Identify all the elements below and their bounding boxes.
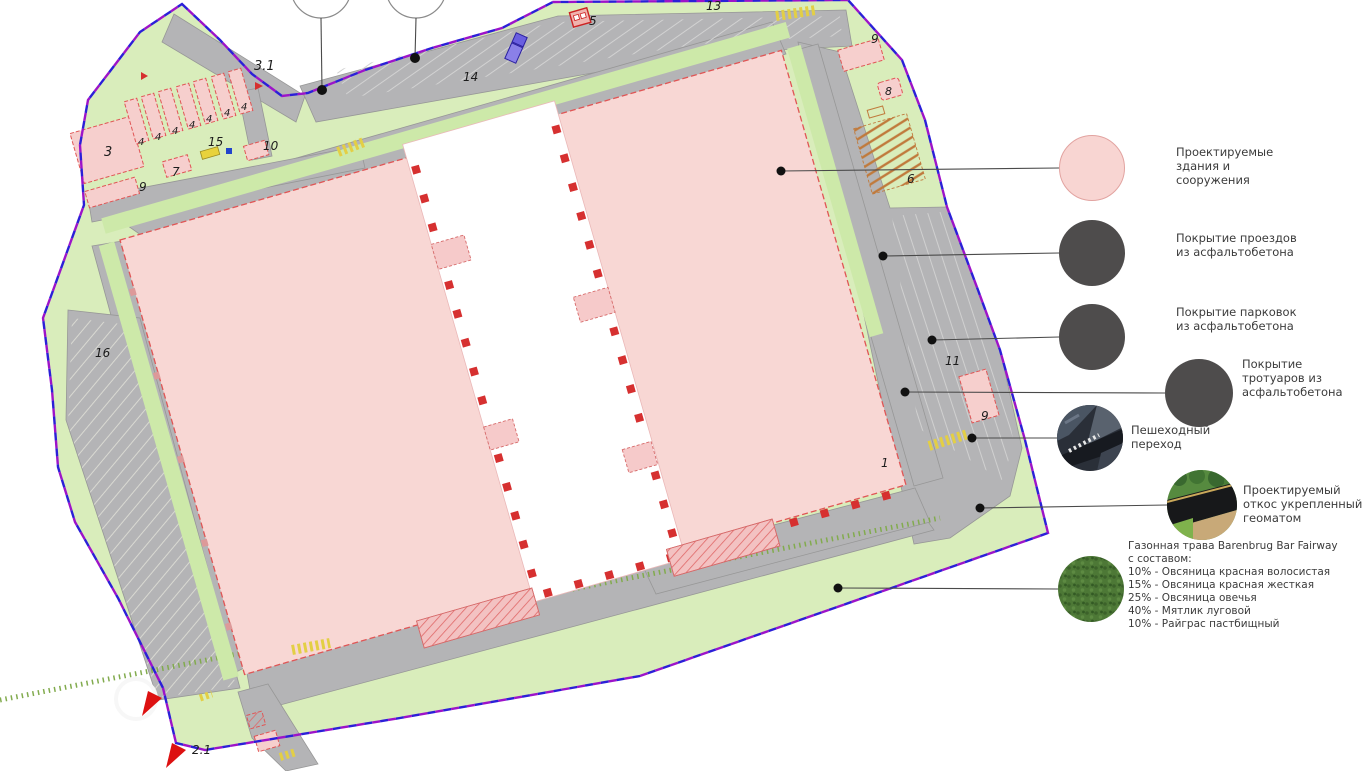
label-15: 15 <box>208 135 223 149</box>
legend-label-crosswalk: Пешеходный переход <box>1131 423 1210 451</box>
label-4: 4 <box>224 108 230 119</box>
label-13: 13 <box>706 0 721 13</box>
site-plan-page: 3.1 3 4 4 4 4 4 4 4 15 10 7 9 5 13 14 9 … <box>0 0 1371 771</box>
legend-label-slope: Проектируемый откос укрепленный геоматом <box>1243 483 1362 525</box>
label-10: 10 <box>263 139 279 153</box>
label-11: 11 <box>945 354 960 368</box>
slope-photo-icon <box>1167 470 1237 540</box>
legend-swatch-sidewalks <box>1165 359 1233 427</box>
label-3: 3 <box>104 145 112 160</box>
label-4: 4 <box>155 132 161 143</box>
label-3-1: 3.1 <box>254 59 275 74</box>
label-1: 1 <box>881 456 889 470</box>
marker-15 <box>226 148 232 154</box>
label-4: 4 <box>138 137 144 148</box>
legend-swatch-buildings <box>1059 135 1125 201</box>
label-4: 4 <box>172 126 178 137</box>
label-5: 5 <box>589 14 597 28</box>
legend-label-parking: Покрытие парковок из асфальтобетона <box>1176 305 1297 333</box>
label-9c: 9 <box>981 409 989 423</box>
label-4: 4 <box>206 114 212 125</box>
label-7: 7 <box>172 165 180 179</box>
legend-label-sidewalks: Покрытие тротуаров из асфальтобетона <box>1242 357 1343 399</box>
label-2-1: 2.1 <box>192 743 211 757</box>
label-9b: 9 <box>871 32 879 46</box>
legend-swatch-grass-photo <box>1058 556 1124 622</box>
legend-label-buildings: Проектируемые здания и сооружения <box>1176 145 1273 187</box>
legend-label-driveways: Покрытие проездов из асфальтобетона <box>1176 231 1297 259</box>
label-16: 16 <box>95 346 111 360</box>
label-4: 4 <box>241 102 247 113</box>
legend-swatch-slope-photo <box>1167 470 1237 540</box>
legend-swatch-crosswalk-photo <box>1057 405 1123 471</box>
legend-swatch-driveways <box>1059 220 1125 286</box>
legend-label-lawn: Газонная трава Barenbrug Bar Fairway с с… <box>1128 540 1338 631</box>
label-6: 6 <box>907 172 915 186</box>
crosswalk-photo-icon <box>1057 405 1123 471</box>
label-8: 8 <box>885 85 892 98</box>
label-9: 9 <box>139 180 147 194</box>
label-14: 14 <box>463 70 478 84</box>
label-4: 4 <box>189 120 195 131</box>
legend-swatch-parking <box>1059 304 1125 370</box>
grass-photo-icon <box>1058 556 1124 622</box>
